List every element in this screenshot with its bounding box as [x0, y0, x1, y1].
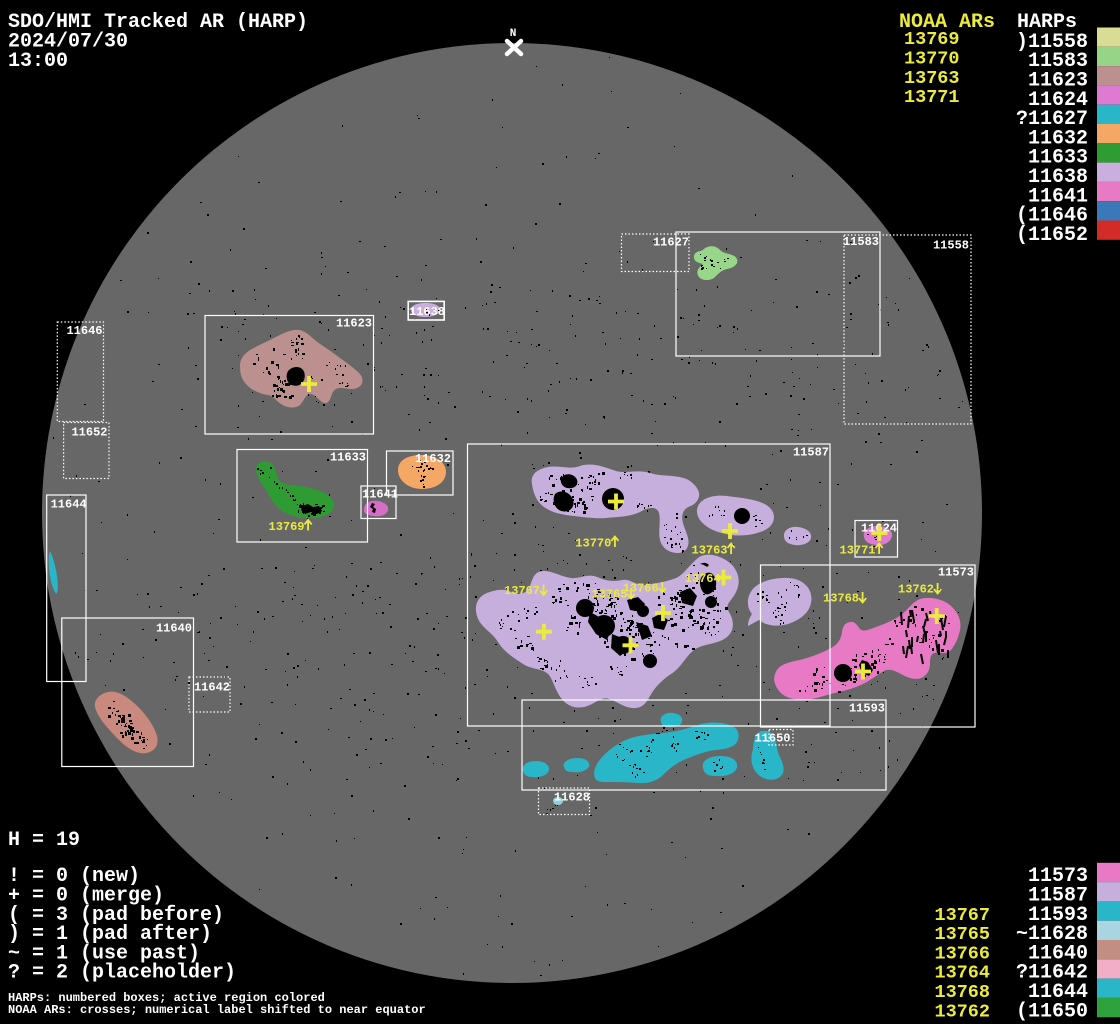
- svg-text:13766: 13766: [934, 943, 990, 964]
- svg-text:13769: 13769: [269, 520, 305, 534]
- svg-text:11638: 11638: [409, 305, 445, 319]
- svg-text:(11650: (11650: [1016, 1000, 1088, 1023]
- svg-text:13762: 13762: [934, 1001, 990, 1022]
- svg-text:13771: 13771: [904, 87, 960, 108]
- svg-text:NOAA ARs: crosses; numerical l: NOAA ARs: crosses; numerical label shift…: [8, 1003, 426, 1017]
- svg-text:? = 2 (placeholder): ? = 2 (placeholder): [8, 962, 236, 985]
- svg-text:11587: 11587: [793, 446, 829, 460]
- svg-text:11628: 11628: [554, 791, 590, 805]
- svg-text:11650: 11650: [754, 732, 790, 746]
- svg-text:13767: 13767: [934, 905, 990, 926]
- svg-text:13769: 13769: [904, 29, 960, 50]
- svg-text:13763: 13763: [904, 68, 960, 89]
- svg-text:11632: 11632: [415, 452, 451, 466]
- svg-text:11640: 11640: [156, 622, 192, 636]
- svg-text:11642: 11642: [194, 681, 230, 695]
- svg-text:13762: 13762: [898, 583, 934, 597]
- svg-text:11652: 11652: [71, 426, 107, 440]
- svg-text:13:00: 13:00: [8, 50, 68, 73]
- svg-text:13768: 13768: [823, 592, 859, 606]
- svg-text:13766: 13766: [623, 582, 659, 596]
- svg-text:13765: 13765: [934, 924, 990, 945]
- svg-text:13770: 13770: [904, 49, 960, 70]
- svg-text:N: N: [510, 28, 517, 40]
- svg-text:13764: 13764: [685, 572, 721, 586]
- svg-text:13771: 13771: [840, 544, 876, 558]
- svg-text:13768: 13768: [934, 982, 990, 1003]
- svg-text:11593: 11593: [849, 702, 885, 716]
- svg-text:11623: 11623: [336, 317, 372, 331]
- svg-text:11644: 11644: [51, 498, 87, 512]
- svg-text:11573: 11573: [938, 566, 974, 580]
- svg-text:11583: 11583: [843, 235, 879, 249]
- svg-text:11558: 11558: [933, 239, 969, 253]
- svg-text:13764: 13764: [934, 963, 990, 984]
- svg-text:13767: 13767: [504, 584, 540, 598]
- svg-text:13770: 13770: [575, 537, 611, 551]
- svg-text:(11652: (11652: [1016, 224, 1088, 247]
- svg-text:11627: 11627: [653, 236, 689, 250]
- svg-text:11646: 11646: [66, 324, 102, 338]
- svg-text:11633: 11633: [330, 451, 366, 465]
- svg-text:11641: 11641: [362, 488, 398, 502]
- svg-text:13763: 13763: [692, 544, 728, 558]
- svg-text:H = 19: H = 19: [8, 829, 80, 852]
